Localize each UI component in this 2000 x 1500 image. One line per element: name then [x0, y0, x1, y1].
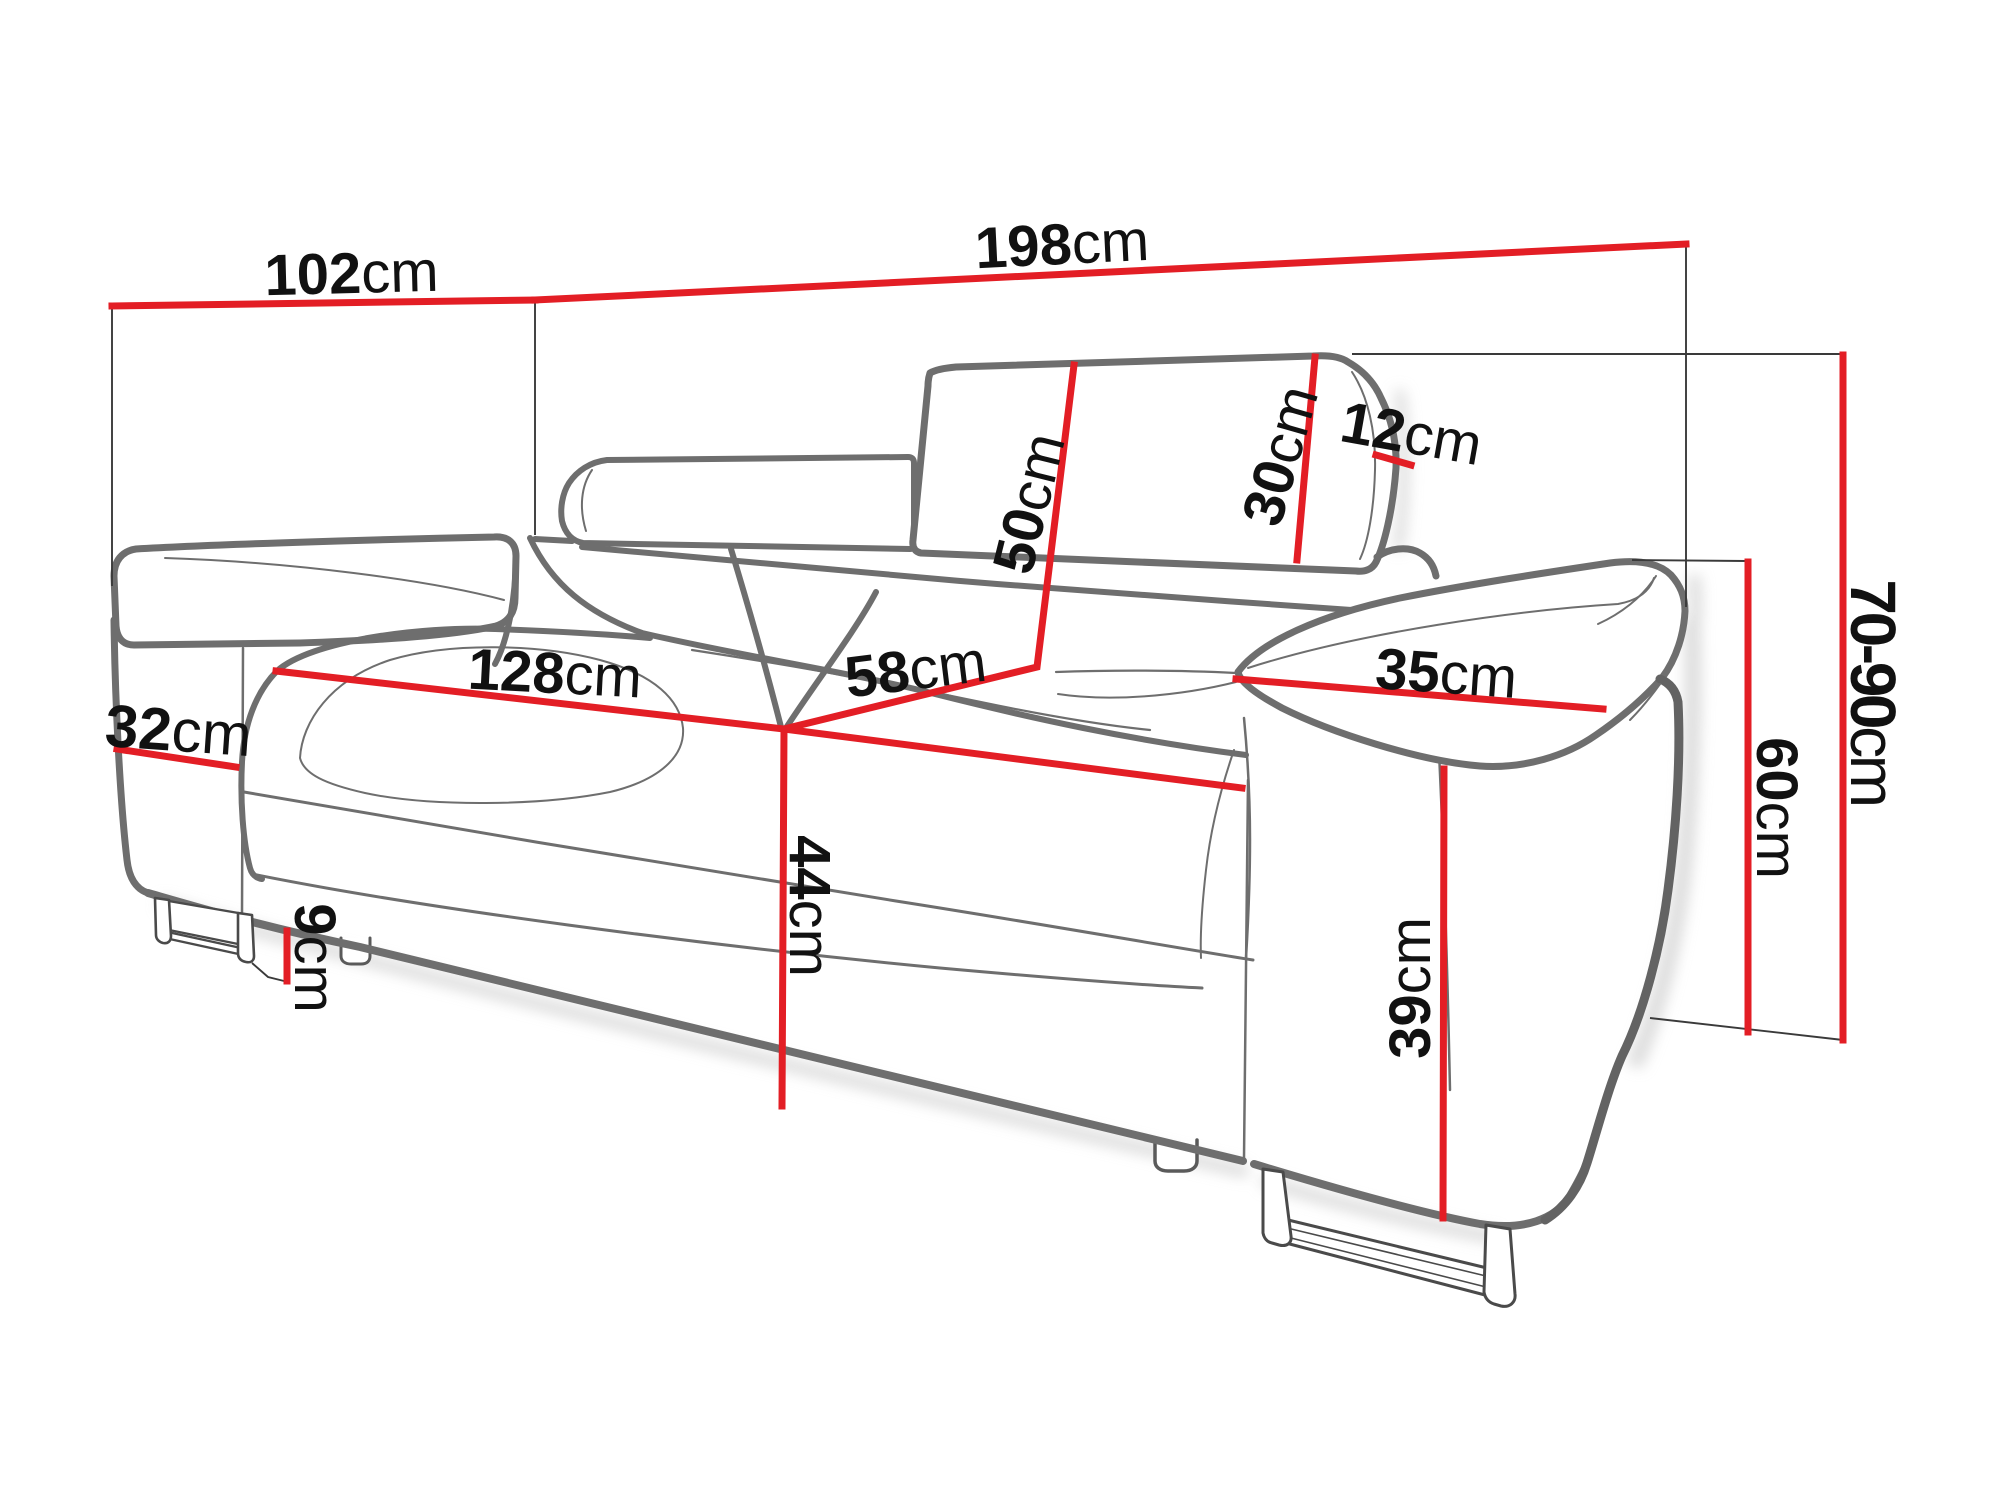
svg-text:70-90cm: 70-90cm	[1837, 579, 1909, 804]
svg-text:198cm: 198cm	[974, 208, 1151, 281]
svg-text:39cm: 39cm	[1378, 917, 1443, 1059]
svg-text:102cm: 102cm	[264, 239, 440, 309]
svg-text:9cm: 9cm	[282, 903, 347, 1013]
svg-text:35cm: 35cm	[1373, 636, 1519, 711]
svg-text:32cm: 32cm	[103, 692, 254, 769]
svg-text:44cm: 44cm	[777, 835, 842, 977]
svg-text:60cm: 60cm	[1744, 737, 1809, 879]
svg-text:128cm: 128cm	[466, 637, 643, 711]
